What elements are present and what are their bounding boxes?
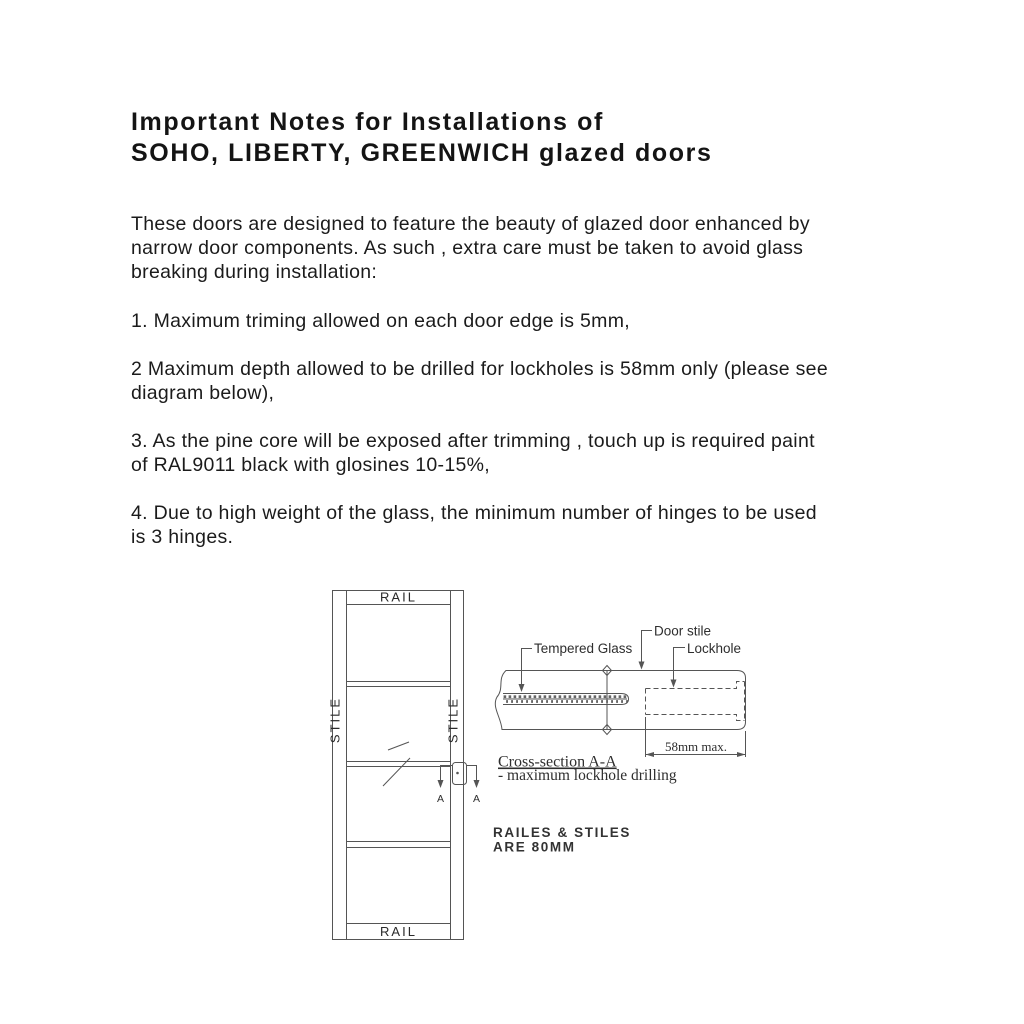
note-line: is 3 hinges. xyxy=(131,525,817,549)
glass-mark xyxy=(383,758,410,786)
section-label-right: A xyxy=(473,793,480,805)
note-item-1: 1. Maximum triming allowed on each door … xyxy=(131,309,630,333)
title-line-2: SOHO, LIBERTY, GREENWICH glazed doors xyxy=(131,138,712,169)
stile-label-left: STILE xyxy=(328,697,343,743)
size-note: RAILES & STILES ARE 80MM xyxy=(493,825,631,855)
door-stile-label: Door stile xyxy=(654,624,711,639)
section-marker-right: A xyxy=(467,766,481,806)
door-elevation-drawing: RAIL RAIL STILE STILE A A xyxy=(328,590,481,940)
dimension-58mm: 58mm max. xyxy=(646,717,746,757)
intro-line: These doors are designed to feature the … xyxy=(131,212,810,236)
note-line: 1. Maximum triming allowed on each door … xyxy=(131,309,630,333)
installation-diagram: RAIL RAIL STILE STILE A A xyxy=(0,570,1024,990)
intro-line: narrow door components. As such , extra … xyxy=(131,236,810,260)
size-note-line-1: RAILES & STILES xyxy=(493,825,631,840)
note-line: of RAL9011 black with glosines 10-15%, xyxy=(131,453,815,477)
lockhole-label: Lockhole xyxy=(687,641,741,656)
intro-paragraph: These doors are designed to feature the … xyxy=(131,212,810,284)
door-lockhole xyxy=(453,763,467,785)
note-line: 4. Due to high weight of the glass, the … xyxy=(131,501,817,525)
size-note-line-2: ARE 80MM xyxy=(493,840,576,855)
note-line: diagram below), xyxy=(131,381,828,405)
note-line: 2 Maximum depth allowed to be drilled fo… xyxy=(131,357,828,381)
page-title: Important Notes for Installations of SOH… xyxy=(131,107,712,169)
rail-label-top: RAIL xyxy=(380,590,417,605)
tempered-glass-label: Tempered Glass xyxy=(534,641,633,656)
tempered-glass-leader: Tempered Glass xyxy=(519,641,633,692)
note-item-4: 4. Due to high weight of the glass, the … xyxy=(131,501,817,549)
note-item-2: 2 Maximum depth allowed to be drilled fo… xyxy=(131,357,828,405)
cross-section-drawing: Tempered Glass Door stile Lockhole 58mm … xyxy=(495,624,745,785)
dimension-label: 58mm max. xyxy=(665,739,727,754)
lockhole-leader: Lockhole xyxy=(671,641,742,688)
section-label-left: A xyxy=(437,793,444,805)
glass-mark xyxy=(388,742,409,750)
rail-label-bottom: RAIL xyxy=(380,924,417,939)
note-item-3: 3. As the pine core will be exposed afte… xyxy=(131,429,815,477)
title-line-1: Important Notes for Installations of xyxy=(131,107,712,138)
cross-section-caption-note: - maximum lockhole drilling xyxy=(498,767,677,784)
intro-line: breaking during installation: xyxy=(131,260,810,284)
lockhole-dot xyxy=(456,772,459,775)
lockhole-drilling-outline xyxy=(646,682,745,721)
stile-label-right: STILE xyxy=(446,697,461,743)
note-line: 3. As the pine core will be exposed afte… xyxy=(131,429,815,453)
